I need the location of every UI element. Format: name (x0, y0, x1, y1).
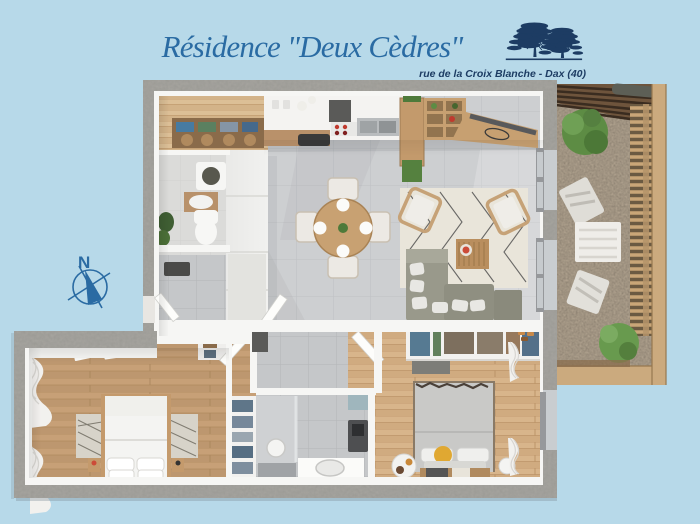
svg-text:rue de la Croix Blanche - Dax: rue de la Croix Blanche - Dax (40) (419, 68, 586, 80)
svg-text:Résidence "Deux Cèdres": Résidence "Deux Cèdres" (161, 29, 465, 64)
svg-text:N: N (78, 253, 90, 272)
